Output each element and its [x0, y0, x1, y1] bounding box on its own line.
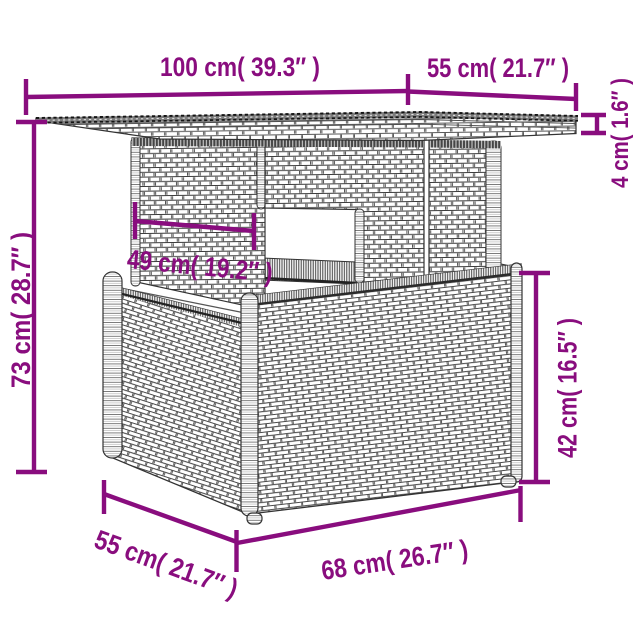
svg-text:73 cm( 28.7″ ): 73 cm( 28.7″ ) [6, 232, 36, 388]
svg-text:4 cm( 1.6″ ): 4 cm( 1.6″ ) [607, 78, 634, 188]
svg-text:100 cm( 39.3″ ): 100 cm( 39.3″ ) [160, 52, 320, 82]
svg-text:55 cm( 21.7″ ): 55 cm( 21.7″ ) [427, 53, 569, 83]
svg-text:42 cm( 16.5″ ): 42 cm( 16.5″ ) [553, 318, 583, 458]
svg-text:68 cm( 26.7″ ): 68 cm( 26.7″ ) [319, 534, 470, 586]
